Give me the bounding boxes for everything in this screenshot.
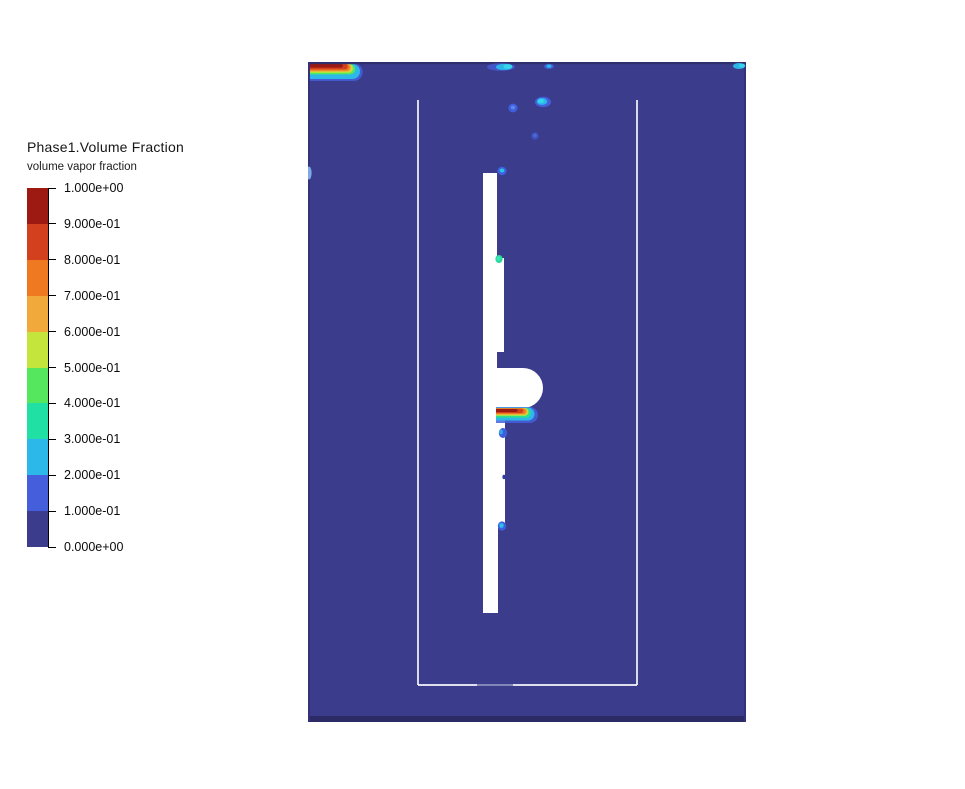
tick-label: 6.000e-01 (64, 325, 120, 339)
colorbar-band (27, 188, 48, 224)
tick-label: 1.000e+00 (64, 181, 123, 195)
figure-canvas: Phase1.Volume Fraction volume vapor frac… (0, 0, 965, 789)
tick-mark (48, 331, 56, 332)
tick-label: 8.000e-01 (64, 253, 120, 267)
colorbar-tick: 2.000e-01 (48, 467, 120, 483)
colorbar-band (27, 332, 48, 368)
tick-label: 7.000e-01 (64, 289, 120, 303)
colorbar-tick: 1.000e+00 (48, 180, 123, 196)
colorbar-tick: 4.000e-01 (48, 395, 120, 411)
colorbar-tick: 3.000e-01 (48, 431, 120, 447)
tick-label: 9.000e-01 (64, 217, 120, 231)
tick-mark (48, 439, 56, 440)
tick-mark (48, 403, 56, 404)
tick-label: 5.000e-01 (64, 361, 120, 375)
colorbar-band (27, 224, 48, 260)
tick-label: 4.000e-01 (64, 396, 120, 410)
colorbar-band (27, 403, 48, 439)
colorbar-tick: 5.000e-01 (48, 360, 120, 376)
colorbar-band (27, 439, 48, 475)
tick-label: 3.000e-01 (64, 432, 120, 446)
tick-mark (48, 295, 56, 296)
colorbar-band (27, 475, 48, 511)
colorbar-band (27, 296, 48, 332)
colorbar-tick: 8.000e-01 (48, 252, 120, 268)
colorbar-tick: 1.000e-01 (48, 503, 120, 519)
contour-plot (308, 62, 746, 722)
tick-label: 0.000e+00 (64, 540, 123, 554)
legend: Phase1.Volume Fraction volume vapor frac… (27, 139, 237, 173)
tick-mark (48, 223, 56, 224)
tick-mark (48, 475, 56, 476)
legend-subtitle: volume vapor fraction (27, 161, 237, 173)
colorbar-tick: 6.000e-01 (48, 324, 120, 340)
colorbar: 1.000e+00 9.000e-01 8.000e-01 7.000e-01 … (27, 188, 237, 568)
tick-mark (48, 367, 56, 368)
tick-mark (48, 511, 56, 512)
colorbar-bands (27, 188, 49, 547)
colorbar-band (27, 260, 48, 296)
tick-label: 1.000e-01 (64, 504, 120, 518)
colorbar-band (27, 368, 48, 404)
tick-label: 2.000e-01 (64, 468, 120, 482)
colorbar-tick: 9.000e-01 (48, 216, 120, 232)
tick-mark (48, 188, 56, 189)
colorbar-tick: 7.000e-01 (48, 288, 120, 304)
colorbar-band (27, 511, 48, 547)
tick-mark (48, 547, 56, 548)
vapor-strip-top-left (308, 64, 363, 81)
legend-title: Phase1.Volume Fraction (27, 139, 237, 155)
colorbar-tick: 0.000e+00 (48, 539, 123, 555)
vapor-pocket-bulge (496, 407, 538, 423)
tick-mark (48, 259, 56, 260)
simulation-domain (308, 62, 746, 722)
